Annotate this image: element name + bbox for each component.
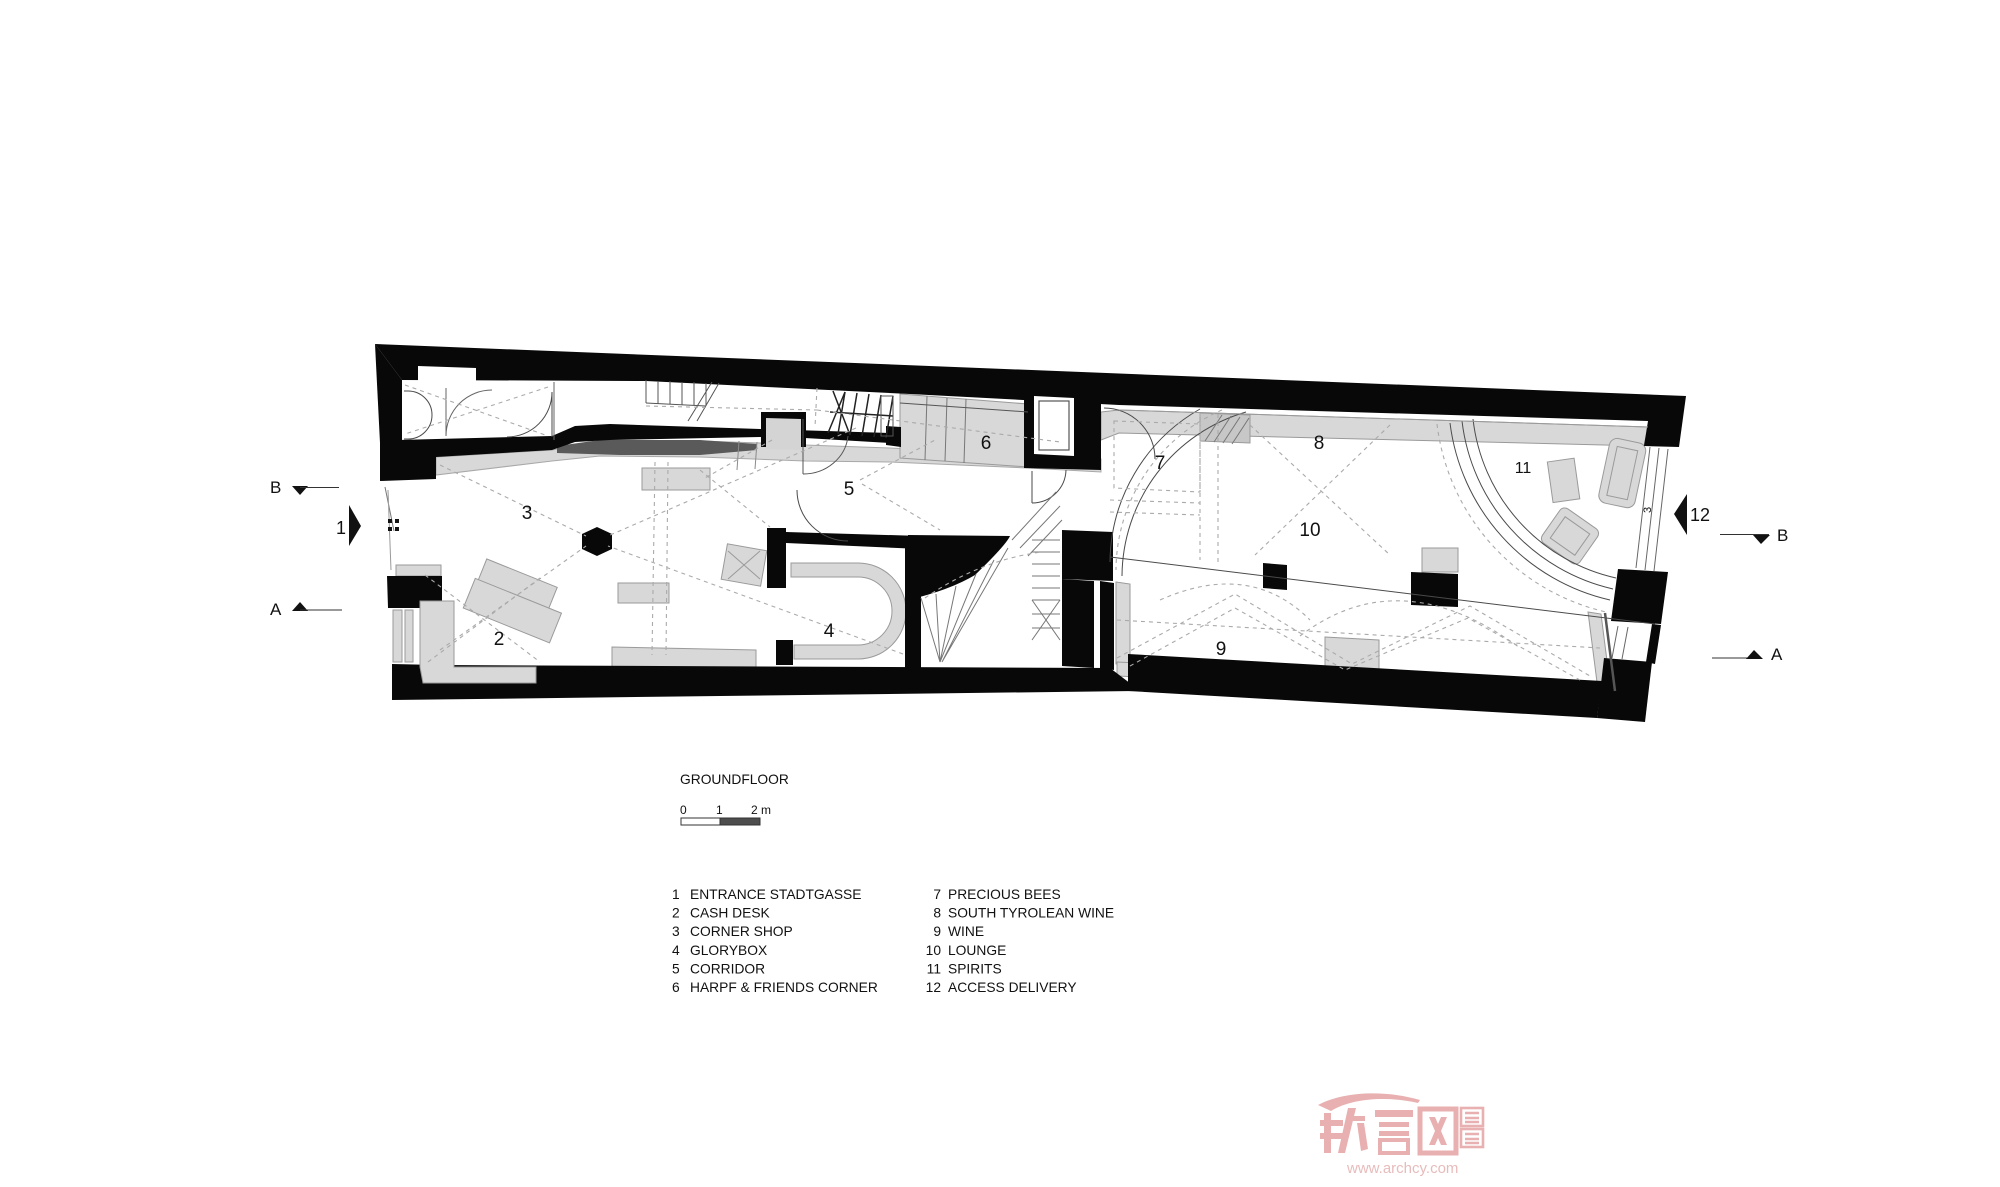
svg-text:PRECIOUS BEES: PRECIOUS BEES (948, 887, 1061, 902)
svg-text:ACCESS DELIVERY: ACCESS DELIVERY (948, 980, 1077, 995)
svg-text:1: 1 (336, 518, 346, 538)
svg-text:3: 3 (672, 924, 680, 939)
svg-text:A: A (1771, 645, 1783, 664)
svg-text:7: 7 (933, 887, 941, 902)
svg-text:11: 11 (927, 961, 941, 976)
svg-text:GROUNDFLOOR: GROUNDFLOOR (680, 772, 789, 787)
svg-text:3: 3 (522, 503, 533, 524)
svg-text:12: 12 (926, 980, 941, 995)
svg-text:GLORYBOX: GLORYBOX (690, 943, 767, 958)
svg-text:5: 5 (672, 961, 680, 976)
svg-text:9: 9 (1216, 639, 1227, 660)
svg-text:SPIRITS: SPIRITS (948, 961, 1002, 976)
svg-text:B: B (1777, 526, 1788, 545)
svg-text:1: 1 (672, 887, 680, 902)
svg-text:11: 11 (1515, 460, 1532, 477)
svg-text:8: 8 (933, 906, 941, 921)
svg-text:1: 1 (716, 803, 723, 817)
svg-text:3: 3 (1642, 507, 1654, 513)
svg-text:10: 10 (1299, 520, 1320, 541)
svg-text:HARPF & FRIENDS CORNER: HARPF & FRIENDS CORNER (690, 980, 878, 995)
svg-text:4: 4 (824, 621, 835, 642)
svg-text:7: 7 (1155, 453, 1166, 474)
svg-text:SOUTH TYROLEAN WINE: SOUTH TYROLEAN WINE (948, 906, 1114, 921)
svg-text:0: 0 (680, 803, 687, 817)
svg-text:A: A (270, 600, 282, 619)
svg-text:10: 10 (926, 943, 942, 958)
svg-text:2: 2 (672, 906, 680, 921)
svg-text:CORRIDOR: CORRIDOR (690, 961, 765, 976)
svg-text:www.archcy.com: www.archcy.com (1346, 1160, 1458, 1177)
svg-text:LOUNGE: LOUNGE (948, 943, 1006, 958)
svg-text:8: 8 (1314, 433, 1325, 454)
svg-text:12: 12 (1690, 505, 1710, 525)
svg-text:2 m: 2 m (751, 803, 771, 817)
svg-text:6: 6 (672, 980, 680, 995)
svg-text:9: 9 (933, 924, 941, 939)
svg-text:2: 2 (494, 629, 505, 650)
svg-text:4: 4 (672, 943, 680, 958)
svg-text:ENTRANCE STADTGASSE: ENTRANCE STADTGASSE (690, 887, 861, 902)
svg-text:B: B (270, 478, 281, 497)
svg-text:6: 6 (981, 433, 992, 454)
svg-text:WINE: WINE (948, 924, 984, 939)
svg-text:CASH DESK: CASH DESK (690, 906, 771, 921)
svg-text:5: 5 (844, 479, 855, 500)
svg-text:CORNER SHOP: CORNER SHOP (690, 924, 793, 939)
